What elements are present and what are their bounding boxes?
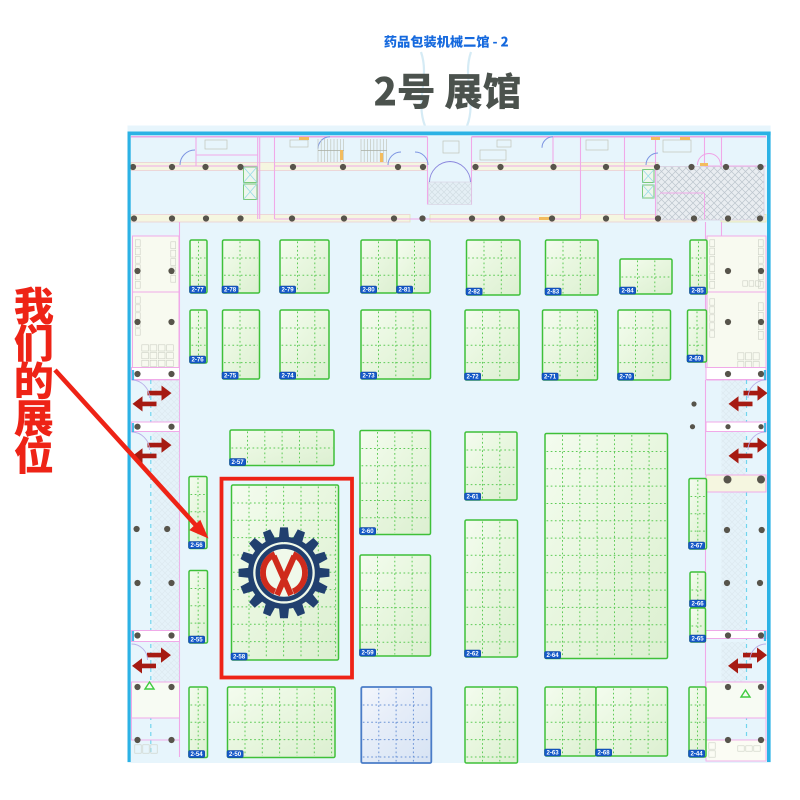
svg-text:2-64: 2-64 [546,652,559,659]
svg-text:2-50: 2-50 [229,751,242,758]
svg-text:2-55: 2-55 [190,637,203,644]
svg-text:2-73: 2-73 [362,373,375,380]
svg-text:2-62: 2-62 [466,651,479,658]
svg-text:2-84: 2-84 [621,288,634,295]
svg-text:2-44: 2-44 [690,751,703,758]
svg-text:2-60: 2-60 [361,528,374,535]
svg-text:2-56: 2-56 [190,542,203,549]
svg-text:2-68: 2-68 [597,750,610,757]
svg-text:2-77: 2-77 [191,287,204,294]
svg-text:2-76: 2-76 [191,357,204,364]
svg-text:2-79: 2-79 [281,287,294,294]
svg-text:2-57: 2-57 [231,459,244,466]
svg-text:2-82: 2-82 [468,289,481,296]
svg-text:2-81: 2-81 [398,287,411,294]
svg-text:2-61: 2-61 [466,494,479,501]
svg-text:2-80: 2-80 [362,287,375,294]
svg-text:2-74: 2-74 [281,373,294,380]
svg-text:2-85: 2-85 [691,288,704,295]
svg-text:2-58: 2-58 [233,654,246,661]
svg-text:2-78: 2-78 [224,287,237,294]
svg-text:2-65: 2-65 [691,636,704,643]
svg-text:2-72: 2-72 [466,374,479,381]
svg-text:2-63: 2-63 [546,750,559,757]
svg-text:2-67: 2-67 [690,543,703,550]
svg-text:2-54: 2-54 [190,751,203,758]
svg-text:2-66: 2-66 [691,601,704,608]
svg-text:2-59: 2-59 [361,650,374,657]
svg-text:2-70: 2-70 [619,374,632,381]
svg-text:2-83: 2-83 [547,289,560,296]
svg-text:2-75: 2-75 [224,373,237,380]
svg-text:2-69: 2-69 [689,356,702,363]
svg-text:2-71: 2-71 [544,374,557,381]
